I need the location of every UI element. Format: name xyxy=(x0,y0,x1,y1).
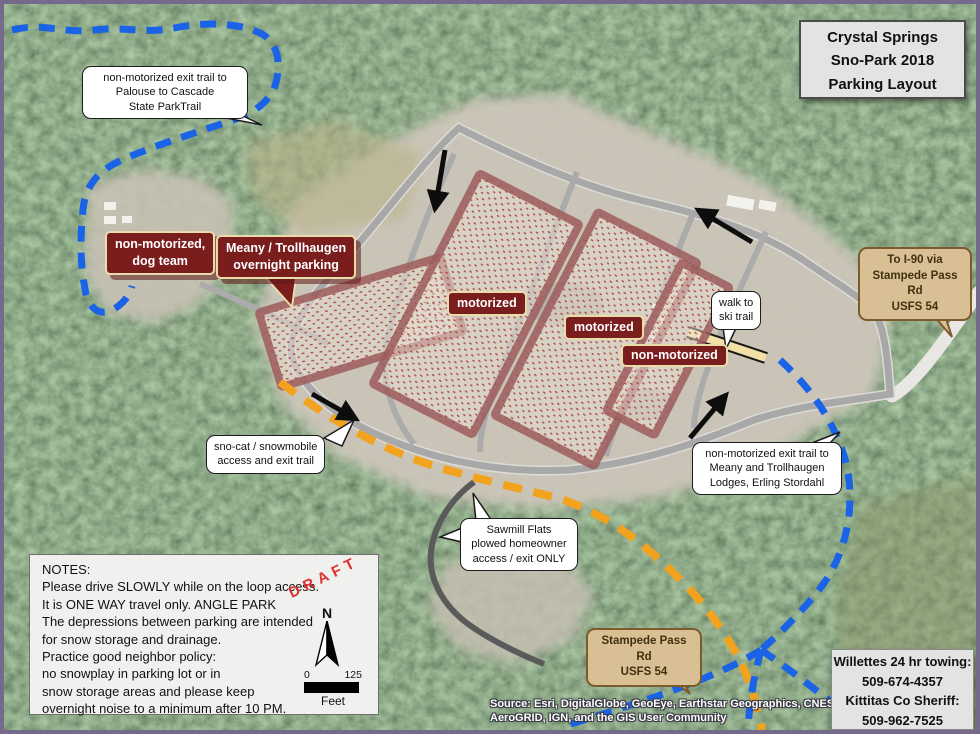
notes-box: NOTES: Please drive SLOWLY while on the … xyxy=(29,554,379,715)
callout-stampede-pass: Stampede Pass Rd USFS 54 xyxy=(586,628,702,687)
sno-park-map: Crystal Springs Sno-Park 2018 Parking La… xyxy=(0,0,980,734)
towing-info-box: Willettes 24 hr towing: 509-674-4357 Kit… xyxy=(831,649,974,730)
label-dog-team: non-motorized, dog team xyxy=(105,231,215,275)
callout-snocat-trail: sno-cat / snowmobile access and exit tra… xyxy=(206,435,325,474)
scale-bar: 0 125 Feet xyxy=(304,669,362,708)
label-motorized-1: motorized xyxy=(447,291,527,316)
scale-end: 125 xyxy=(344,669,362,681)
callout-palouse-trail: non-motorized exit trail to Palouse to C… xyxy=(82,66,248,119)
callout-walk-to-ski: walk to ski trail xyxy=(711,291,761,330)
label-meany-overnight: Meany / Trollhaugen overnight parking xyxy=(216,235,356,279)
label-motorized-2: motorized xyxy=(564,315,644,340)
scale-bar-rect xyxy=(304,682,359,693)
scale-start: 0 xyxy=(304,669,310,681)
north-arrow-needle xyxy=(314,621,340,667)
scale-unit: Feet xyxy=(304,694,362,708)
north-arrow: N xyxy=(312,605,342,672)
attribution-text: Source: Esri, DigitalGlobe, GeoEye, Eart… xyxy=(490,698,872,726)
callout-sawmill-flats: Sawmill Flats plowed homeowner access / … xyxy=(460,518,578,571)
callout-to-i90: To I-90 via Stampede Pass Rd USFS 54 xyxy=(858,247,972,321)
north-label: N xyxy=(312,605,342,621)
label-non-motorized: non-motorized xyxy=(621,344,728,367)
map-title-box: Crystal Springs Sno-Park 2018 Parking La… xyxy=(799,20,966,99)
callout-meany-exit-trail: non-motorized exit trail to Meany and Tr… xyxy=(692,442,842,495)
